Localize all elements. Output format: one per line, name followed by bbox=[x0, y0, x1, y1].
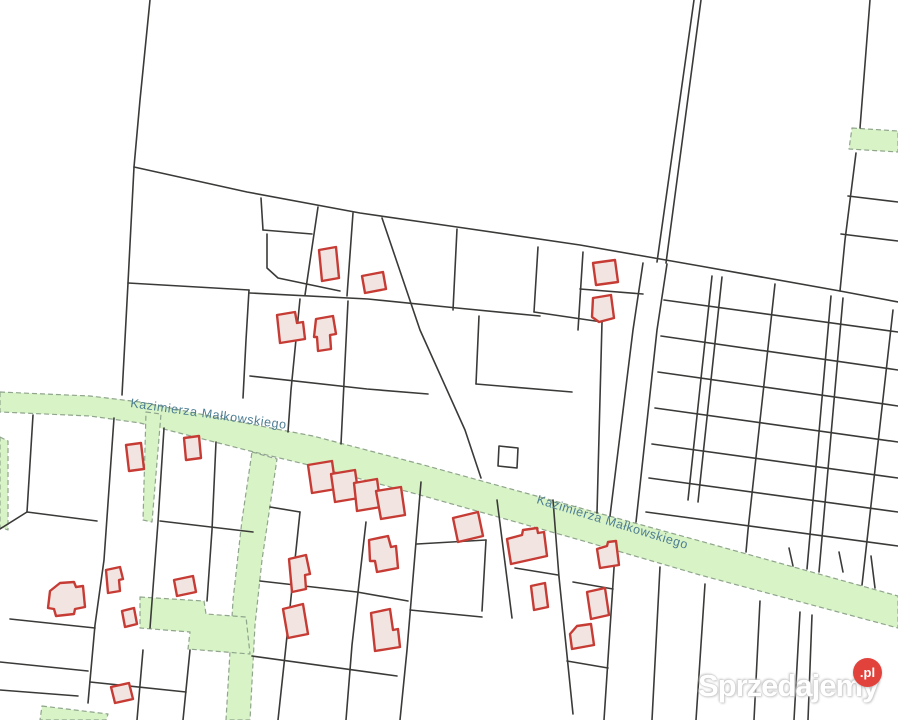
cadastral-map-canvas[interactable]: Kazimierza MałkowskiegoKazimierza Małkow… bbox=[0, 0, 898, 720]
parcel-boundary-line bbox=[10, 619, 95, 628]
parcel-boundary-line bbox=[137, 650, 143, 720]
parcel-boundary-line bbox=[482, 540, 486, 611]
building-footprint bbox=[283, 604, 308, 638]
parcel-boundary-line bbox=[580, 289, 643, 294]
parcel-boundary-line bbox=[655, 408, 898, 442]
building-footprint bbox=[570, 624, 594, 649]
parcel-boundary-line bbox=[698, 277, 722, 502]
parcel-boundary-line bbox=[649, 478, 898, 512]
parcel-boundary-line bbox=[128, 283, 249, 290]
parcel-boundary-line bbox=[134, 167, 898, 302]
parcel-boundary-line bbox=[160, 521, 253, 532]
parcel-boundary-line bbox=[848, 196, 898, 202]
parcel-boundary-line bbox=[534, 247, 538, 312]
parcel-boundary-line bbox=[305, 207, 318, 295]
road-surface-side-road-south bbox=[226, 452, 277, 720]
parcel-boundary-line bbox=[515, 568, 558, 575]
parcel-boundary-line bbox=[90, 682, 186, 692]
parcel-boundary-line bbox=[871, 556, 875, 588]
parcel-boundary-line bbox=[263, 230, 312, 234]
parcel-boundary-line bbox=[88, 418, 114, 703]
building-footprint bbox=[362, 272, 386, 293]
parcel-boundary-line bbox=[661, 336, 898, 370]
building-footprint bbox=[507, 528, 547, 564]
building-footprint bbox=[106, 567, 123, 593]
inholding-parcel bbox=[498, 446, 518, 468]
building-footprint bbox=[289, 555, 310, 592]
parcel-boundary-line bbox=[260, 581, 408, 601]
parcel-boundary-line bbox=[746, 284, 775, 552]
parcel-boundary-line bbox=[347, 213, 353, 296]
building-footprint bbox=[111, 683, 133, 703]
parcel-boundary-line bbox=[27, 512, 97, 521]
parcel-boundary-line bbox=[657, 0, 694, 262]
parcel-boundary-line bbox=[261, 198, 263, 230]
building-footprint bbox=[453, 512, 483, 542]
parcel-boundary-line bbox=[840, 153, 856, 291]
building-footprint bbox=[48, 582, 85, 616]
parcel-boundary-line bbox=[789, 548, 793, 566]
parcel-boundary-line bbox=[0, 662, 88, 671]
road-surface-top-right-strip bbox=[849, 128, 898, 152]
building-footprint bbox=[319, 247, 339, 281]
parcel-boundary-line bbox=[341, 301, 348, 444]
building-footprint bbox=[122, 608, 137, 627]
parcel-boundary-line bbox=[688, 276, 712, 500]
parcel-boundary-line bbox=[476, 316, 479, 384]
parcel-boundary-line bbox=[839, 552, 843, 572]
road-surface-bottom-left-strip bbox=[40, 706, 108, 720]
parcel-boundary-line bbox=[658, 372, 898, 406]
parcel-boundary-line bbox=[243, 290, 249, 398]
parcel-boundary-line bbox=[476, 384, 572, 392]
building-footprint bbox=[277, 312, 305, 343]
parcel-boundary-line bbox=[652, 567, 660, 720]
parcel-boundary-line bbox=[252, 656, 397, 676]
building-footprint bbox=[531, 583, 548, 610]
building-footprint bbox=[371, 609, 400, 651]
parcel-boundary-line bbox=[860, 0, 870, 128]
building-footprint bbox=[174, 576, 196, 596]
parcel-boundary-line bbox=[183, 650, 190, 720]
building-footprint bbox=[184, 436, 201, 460]
parcel-boundary-line bbox=[400, 482, 421, 720]
parcel-boundary-line bbox=[0, 690, 78, 696]
parcel-boundary-line bbox=[410, 610, 482, 617]
parcel-boundary-line bbox=[652, 444, 898, 478]
parcel-boundary-line bbox=[382, 218, 481, 478]
parcel-boundary-line bbox=[453, 229, 457, 310]
parcel-boundary-line bbox=[666, 0, 701, 263]
building-footprint bbox=[376, 487, 405, 519]
building-footprint bbox=[587, 588, 609, 619]
building-footprint bbox=[314, 316, 336, 351]
parcel-boundary-line bbox=[270, 507, 300, 512]
road-surface-left-edge-strip bbox=[0, 437, 8, 530]
parcel-boundary-line bbox=[417, 540, 486, 544]
parcel-boundary-line bbox=[346, 522, 366, 720]
parcel-boundary-line bbox=[567, 661, 608, 668]
building-footprint bbox=[126, 443, 144, 471]
parcel-boundary-line bbox=[754, 601, 760, 720]
parcel-boundary-line bbox=[808, 615, 812, 720]
building-footprint bbox=[593, 260, 618, 285]
parcel-boundary-line bbox=[841, 234, 898, 241]
map-viewport: Kazimierza MałkowskiegoKazimierza Małkow… bbox=[0, 0, 898, 720]
parcel-boundary-line bbox=[636, 264, 667, 522]
parcel-boundary-line bbox=[27, 415, 33, 512]
parcel-boundary-line bbox=[122, 0, 150, 395]
parcel-boundary-line bbox=[794, 612, 800, 720]
parcel-boundary-line bbox=[696, 584, 705, 720]
road-surface-main-road bbox=[0, 392, 898, 628]
parcel-boundary-line bbox=[573, 582, 613, 589]
parcel-boundary-line bbox=[819, 298, 843, 572]
parcel-boundary-line bbox=[604, 553, 615, 720]
parcel-boundary-line bbox=[597, 322, 602, 513]
parcel-boundary-line bbox=[610, 263, 643, 516]
parcel-boundary-line bbox=[207, 442, 216, 601]
building-footprint bbox=[369, 536, 398, 572]
parcel-boundary-line bbox=[250, 376, 428, 394]
parcel-boundary-line bbox=[664, 300, 898, 332]
building-footprint bbox=[592, 295, 614, 322]
